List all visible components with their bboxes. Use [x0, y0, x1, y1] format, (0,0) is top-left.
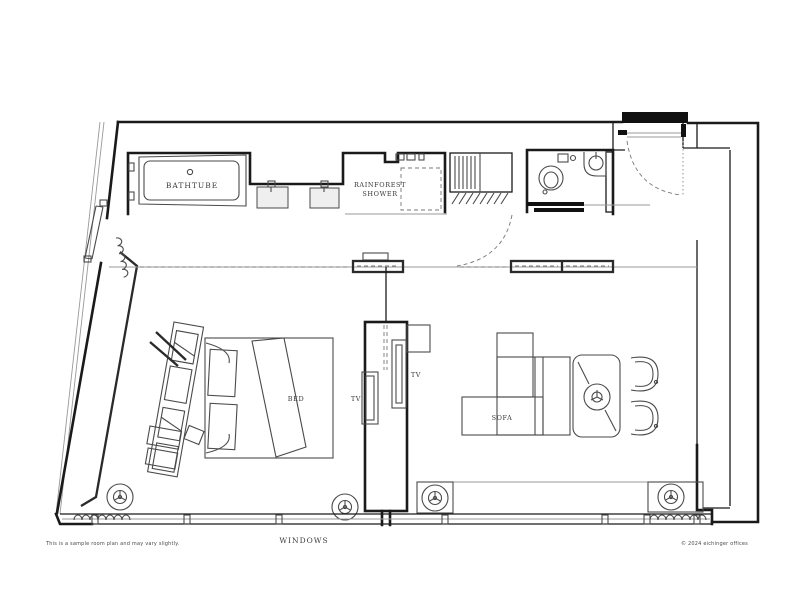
pillow-icon	[208, 349, 237, 449]
sliding-panel-left	[353, 253, 403, 272]
wall-fixture	[129, 192, 134, 200]
bed-label: BED	[288, 395, 305, 403]
shower-label-line1: RAINFOREST	[354, 181, 406, 189]
bathtub-faucet-icon	[187, 169, 192, 174]
armchair-icon	[631, 401, 658, 435]
ceiling-light-icon	[422, 485, 448, 511]
curtains	[74, 237, 706, 520]
corner-basin-icon	[584, 152, 606, 176]
entrance-lintel	[622, 112, 688, 123]
bed-group: BED	[143, 322, 333, 477]
wardrobe-closet	[450, 153, 512, 204]
ceiling-light-icon	[332, 494, 358, 520]
windows-label: WINDOWS	[279, 536, 328, 545]
floor-plan-canvas: BATHTUBE RAINFOREST SHOWER	[0, 0, 800, 600]
wc-room	[457, 150, 650, 266]
toilet-icon	[539, 154, 576, 194]
sliding-panel-right	[511, 261, 613, 272]
stool-icon	[184, 426, 204, 445]
armchairs	[631, 357, 658, 435]
wc-door-swing-arc	[457, 215, 512, 266]
door-jamb	[681, 124, 686, 137]
hanging-clothes-icon	[455, 156, 475, 189]
closet-door-hatch	[452, 193, 508, 204]
wardrobe-hatch	[150, 332, 186, 366]
shower-head-icon	[419, 154, 424, 160]
shower-control-icon	[407, 154, 415, 160]
bathtub: BATHTUBE	[139, 155, 246, 206]
door-jamb	[618, 130, 627, 135]
window-mullions	[92, 515, 700, 524]
shower-label-line2: SHOWER	[362, 190, 398, 198]
copyright-note: © 2024 eichinger offices	[681, 540, 748, 547]
entrance-door	[613, 122, 686, 195]
coffee-table	[573, 355, 620, 437]
bathtub-label: BATHTUBE	[166, 181, 218, 190]
window-ledge	[417, 482, 703, 513]
bathroom-zone: BATHTUBE RAINFOREST SHOWER	[128, 150, 650, 266]
tv-sofa-side-icon	[392, 340, 406, 408]
bedside-wardrobe	[148, 322, 204, 477]
wall-fixture	[129, 163, 134, 171]
tv-sofa-side-label: TV	[411, 371, 421, 379]
wc-sliding-door	[527, 202, 650, 212]
tv-bed-side-label: TV	[351, 395, 361, 403]
room-divider	[109, 253, 697, 272]
ceiling-light-icon	[658, 484, 684, 510]
sofa-label: SOFA	[492, 414, 513, 422]
armchair-icon	[631, 357, 658, 391]
bed-outline	[205, 338, 333, 458]
ceiling-light-icon	[107, 484, 133, 510]
sofa-group: SOFA	[462, 333, 570, 435]
door-swing-arc	[627, 141, 681, 195]
tv-partition: TV TV	[351, 267, 430, 525]
floor-plan-drawing: BATHTUBE RAINFOREST SHOWER	[0, 0, 800, 600]
disclaimer-note: This is a sample room plan and may vary …	[45, 541, 180, 547]
partition-shelf	[407, 325, 430, 352]
